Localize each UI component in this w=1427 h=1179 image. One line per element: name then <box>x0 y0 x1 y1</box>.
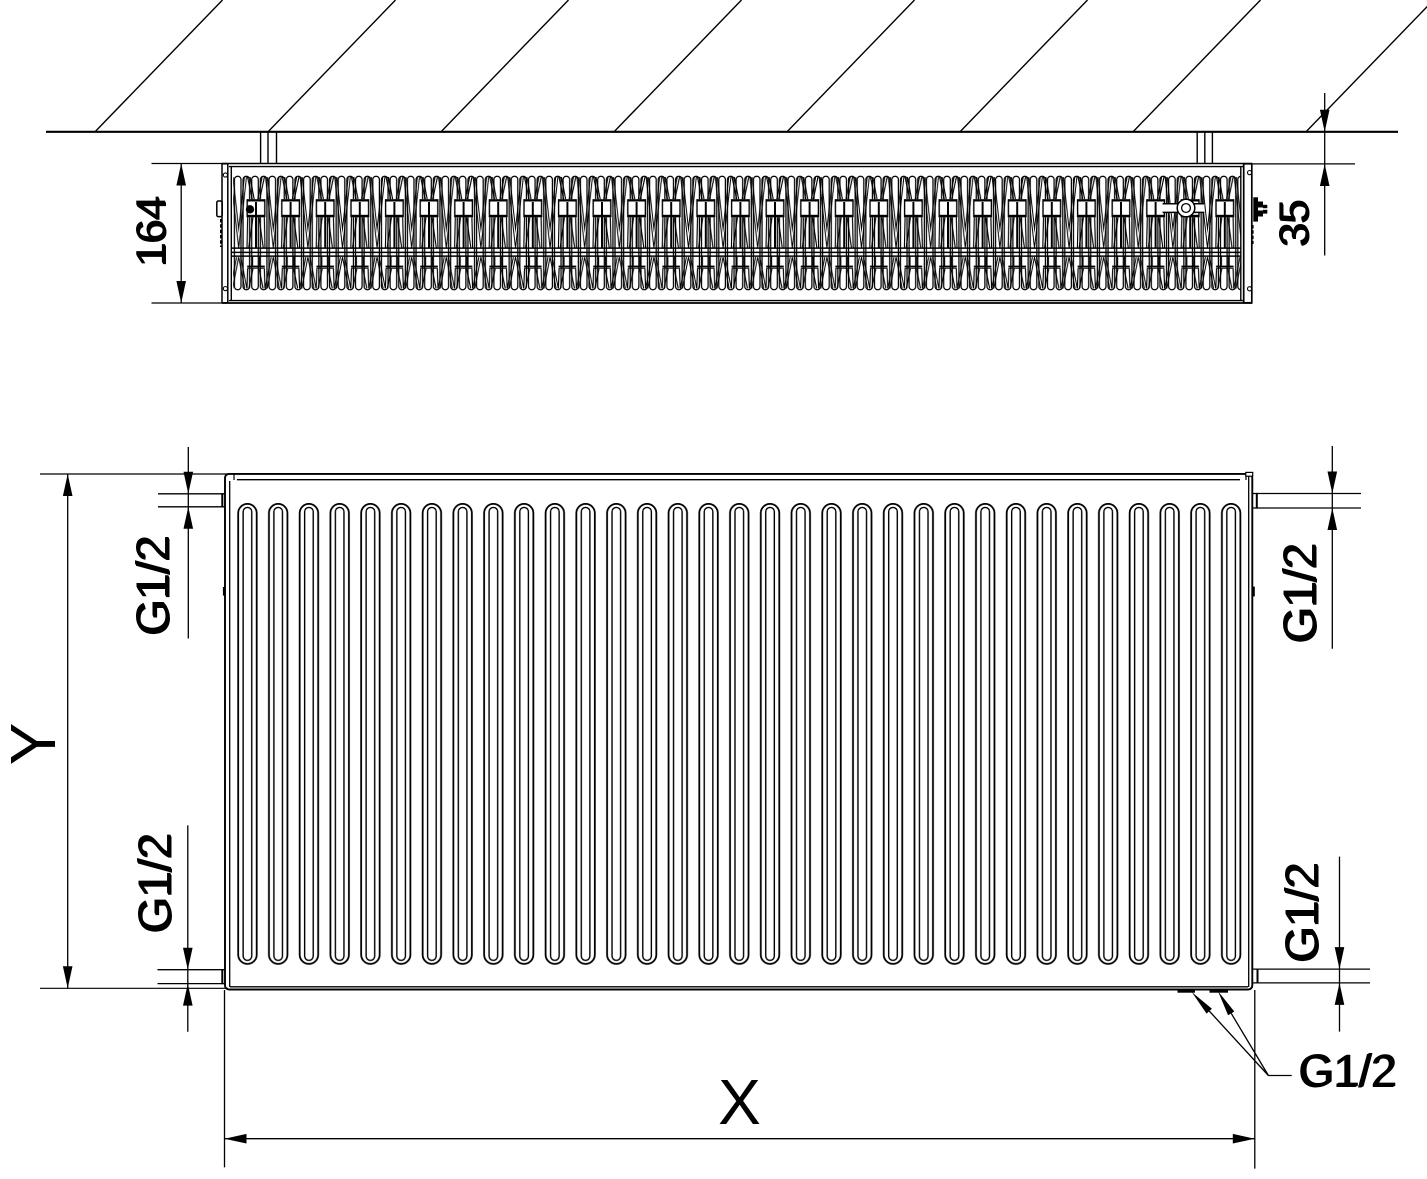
svg-text:G1/2: G1/2 <box>1274 543 1326 643</box>
svg-text:G1/2: G1/2 <box>1276 863 1328 963</box>
svg-text:35: 35 <box>1271 200 1318 247</box>
svg-text:G1/2: G1/2 <box>129 833 181 933</box>
svg-text:164: 164 <box>128 196 175 266</box>
svg-text:X: X <box>718 1066 761 1138</box>
svg-text:Y: Y <box>0 723 69 766</box>
svg-text:G1/2: G1/2 <box>1299 1046 1397 1097</box>
svg-text:G1/2: G1/2 <box>127 536 179 636</box>
